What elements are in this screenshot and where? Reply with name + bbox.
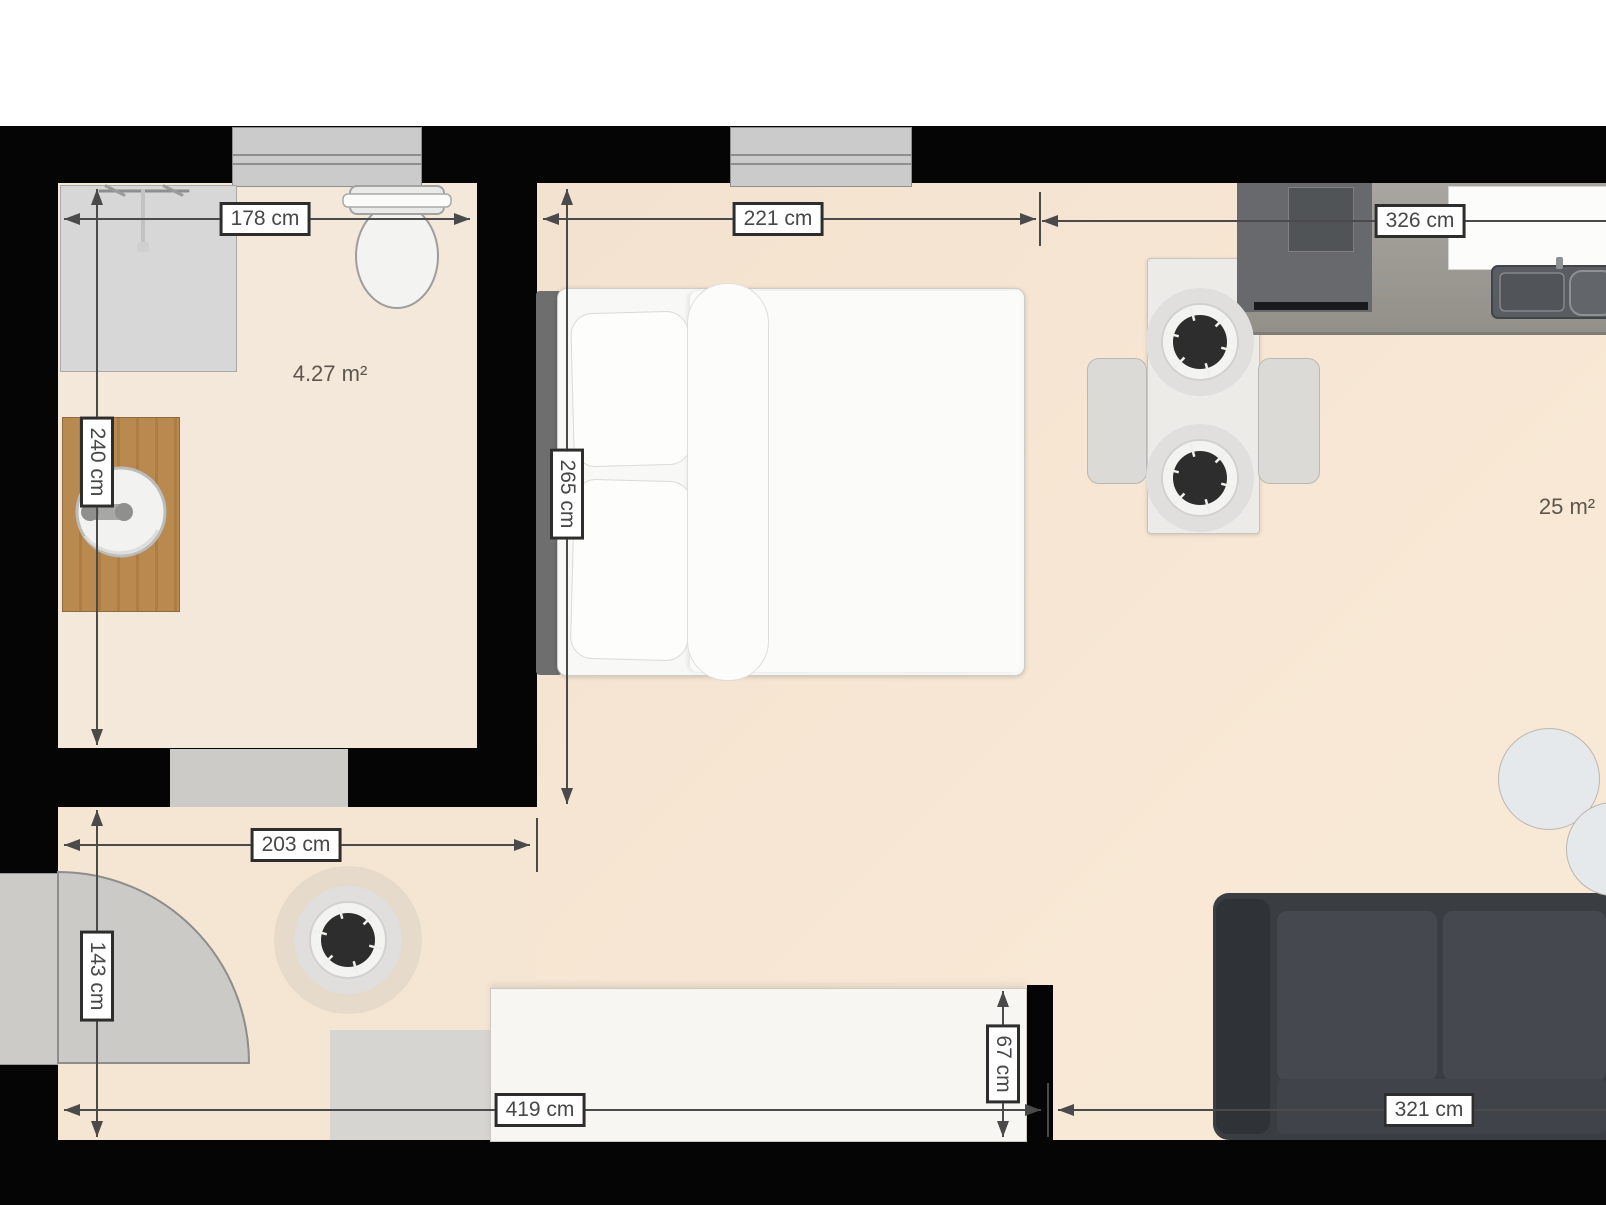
dimension-label-bath-depth: 240 cm (80, 417, 114, 508)
toilet (343, 186, 451, 308)
kitchen-sink (1492, 257, 1606, 318)
dining-chair-seat (1146, 288, 1254, 396)
dimension-lines (64, 189, 1606, 1137)
dimension-label-hall-depth: 143 cm (80, 931, 114, 1022)
dimension-label-cabinet-depth: 67 cm (986, 1024, 1020, 1103)
bathroom-area-label: 4.27 m² (293, 361, 368, 387)
dimension-label-bottom-width: 419 cm (495, 1093, 586, 1127)
dimension-label-bath-width: 178 cm (220, 202, 311, 236)
floor-plan-canvas: 178 cm 221 cm 326 cm 240 cm 265 cm 203 c… (0, 0, 1606, 1205)
dimension-label-hall-width: 203 cm (251, 828, 342, 862)
main-room-area-label: 25 m² (1539, 494, 1595, 520)
dimension-label-bed-depth: 265 cm (550, 449, 584, 540)
plan-vector-overlay (0, 0, 1606, 1205)
dimension-label-kitchen-width: 326 cm (1375, 204, 1466, 238)
hallway-chair (274, 866, 422, 1014)
dimension-label-living-width: 321 cm (1384, 1093, 1475, 1127)
dimension-label-bed-width: 221 cm (733, 202, 824, 236)
dining-chair-seat (1146, 424, 1254, 532)
